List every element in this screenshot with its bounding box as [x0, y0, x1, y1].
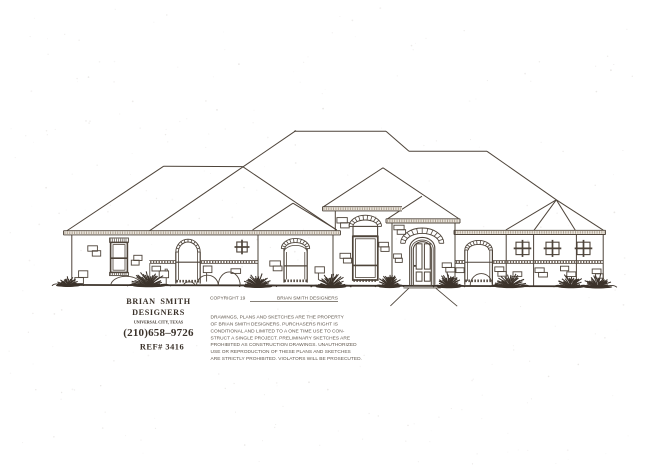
svg-text:DRAWINGS, PLANS AND SKETCHES A: DRAWINGS, PLANS AND SKETCHES ARE THE PRO… — [211, 315, 345, 321]
svg-text:UNIVERSAL CITY, TEXAS: UNIVERSAL CITY, TEXAS — [134, 320, 184, 325]
svg-text:PROHIBITED AS CONSTRUCTION DRA: PROHIBITED AS CONSTRUCTION DRAWINGS. UNA… — [211, 342, 358, 348]
svg-text:CONDITIONAL AND LIMITED TO A O: CONDITIONAL AND LIMITED TO A ONE TIME US… — [211, 328, 345, 334]
svg-text:(210)658–9726: (210)658–9726 — [123, 327, 194, 339]
svg-text:USE OR REPRODUCTION OF THESE P: USE OR REPRODUCTION OF THESE PLANS AND S… — [211, 349, 351, 355]
svg-text:COPYRIGHT 19: COPYRIGHT 19 — [210, 296, 246, 302]
svg-text:ARE STRICTLY PROHIBITED. VIOL: ARE STRICTLY PROHIBITED. VIOLATORS WILL … — [211, 356, 362, 362]
svg-text:DESIGNERS: DESIGNERS — [132, 308, 185, 317]
svg-text:STRUCT A SINGLE PROJECT. PREL: STRUCT A SINGLE PROJECT. PRELIMINARY SKE… — [211, 335, 351, 341]
svg-text:OF BRIAN SMITH DESIGNERS. PUR: OF BRIAN SMITH DESIGNERS. PURCHASERS RIG… — [211, 322, 338, 328]
svg-text:REF# 3416: REF# 3416 — [140, 343, 184, 352]
svg-text:BRIAN SMITH DESIGNERS: BRIAN SMITH DESIGNERS — [277, 296, 338, 302]
svg-text:BRIAN SMITH: BRIAN SMITH — [126, 297, 190, 306]
